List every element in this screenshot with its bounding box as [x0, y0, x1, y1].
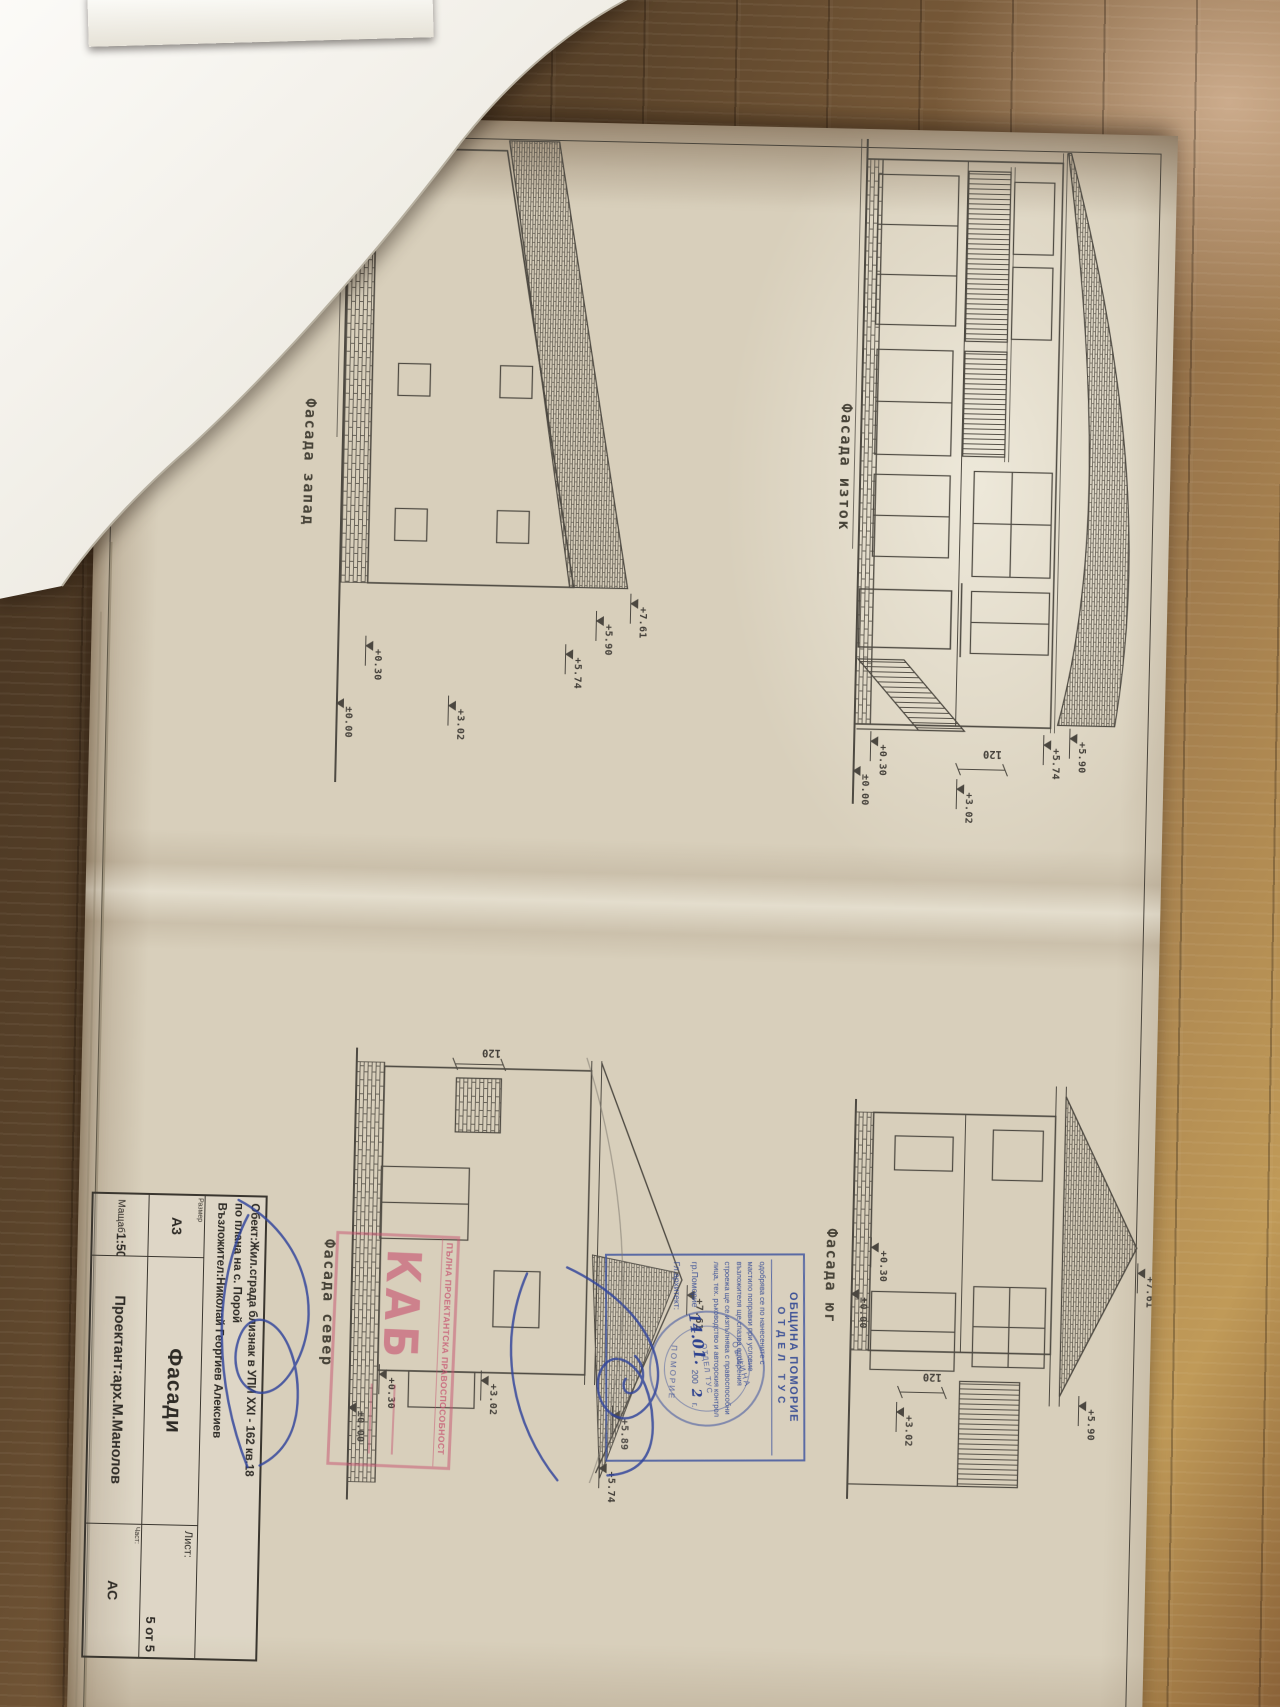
scale-cell: Мащаб 1:50 — [92, 1194, 149, 1257]
elevation-value: +5.74 — [571, 657, 583, 689]
designer-name: Проектант:арх.М.Манолов — [107, 1295, 127, 1484]
part-value: АС — [83, 1524, 141, 1657]
elevation-value: +3.02 — [454, 709, 466, 741]
sheet-value: 5 от 5 — [143, 1616, 159, 1652]
elevation-value: +3.02 — [902, 1415, 914, 1447]
elevation-value: +3.02 — [487, 1384, 499, 1416]
sheet-label: Лист: — [179, 1531, 194, 1653]
stamp-city: гр.Поморие — [690, 1262, 700, 1308]
dimension-120-east: 120 — [983, 748, 1002, 760]
stamp-department: ОТДЕЛ ТУС — [771, 1259, 786, 1455]
license-rule-2 — [368, 1384, 373, 1454]
stamp-municipality: ОБЩИНА ПОМОРИЕ — [787, 1255, 799, 1459]
title-block-grid: Размер А3 Фасади Лист: 5 от 5 Мащаб 1:50 — [83, 1194, 204, 1658]
photo-scene: Фасада изток 120 +5.90 +5.74 +3.02 +0.30… — [0, 0, 1280, 1707]
facade-east: Фасада изток 120 +5.90 +5.74 +3.02 +0.30… — [817, 148, 1168, 855]
flipped-page-corner — [0, 0, 694, 628]
part-cell: Част: АС — [83, 1524, 141, 1657]
architect-label: Гл.архитект: — [672, 1262, 682, 1310]
elevation-value: +5.74 — [1049, 748, 1061, 780]
drawing-title: Фасади — [160, 1348, 186, 1434]
title-block: Обект:Жил.сграда близнак в УПИ XXI - 162… — [81, 1192, 268, 1662]
elevation-value: ±0.00 — [859, 774, 871, 806]
title-block-object: Обект:Жил.сграда близнак в УПИ XXI - 162… — [194, 1196, 265, 1659]
size-value: А3 — [149, 1195, 205, 1257]
elevation-value: +0.30 — [876, 744, 888, 776]
scale-label: Мащаб — [115, 1199, 127, 1233]
designer-cell: Проектант:арх.М.Манолов — [86, 1256, 148, 1525]
elevation-value: +5.90 — [602, 624, 614, 656]
size-cell: Размер А3 — [148, 1195, 205, 1258]
elevation-value: +5.74 — [605, 1471, 617, 1503]
license-stamp: ПЪЛНА ПРОЕКТАНТСКА ПРАВОСПОСОБНОСТ КАБ — [326, 1231, 460, 1470]
elevation-value: ±0.00 — [857, 1297, 869, 1329]
dimension-120-north: 120 — [482, 1046, 501, 1058]
dimension-120-south: 120 — [923, 1371, 942, 1383]
facade-south: Фасада юг 120 +7.61 +5.90 +3.02 +0.30 ±0… — [807, 1078, 1157, 1516]
elevation-value: +0.30 — [371, 649, 383, 681]
elevation-value: +3.02 — [962, 792, 974, 824]
facade-south-label: Фасада юг — [821, 1228, 841, 1324]
sheet-number-cell: Лист: 5 от 5 — [139, 1525, 197, 1658]
scale-value: 1:50 — [113, 1233, 128, 1257]
license-rule-1 — [391, 1385, 396, 1455]
elevation-value: +5.90 — [1084, 1409, 1096, 1441]
elevation-value: +0.30 — [877, 1250, 889, 1282]
license-logo: КАБ — [375, 1248, 427, 1364]
elevation-value: +5.90 — [1076, 742, 1088, 774]
facade-east-label: Фасада изток — [835, 403, 856, 531]
drawing-title-cell: Фасади — [142, 1257, 204, 1526]
elevation-value: ±0.00 — [342, 706, 354, 738]
